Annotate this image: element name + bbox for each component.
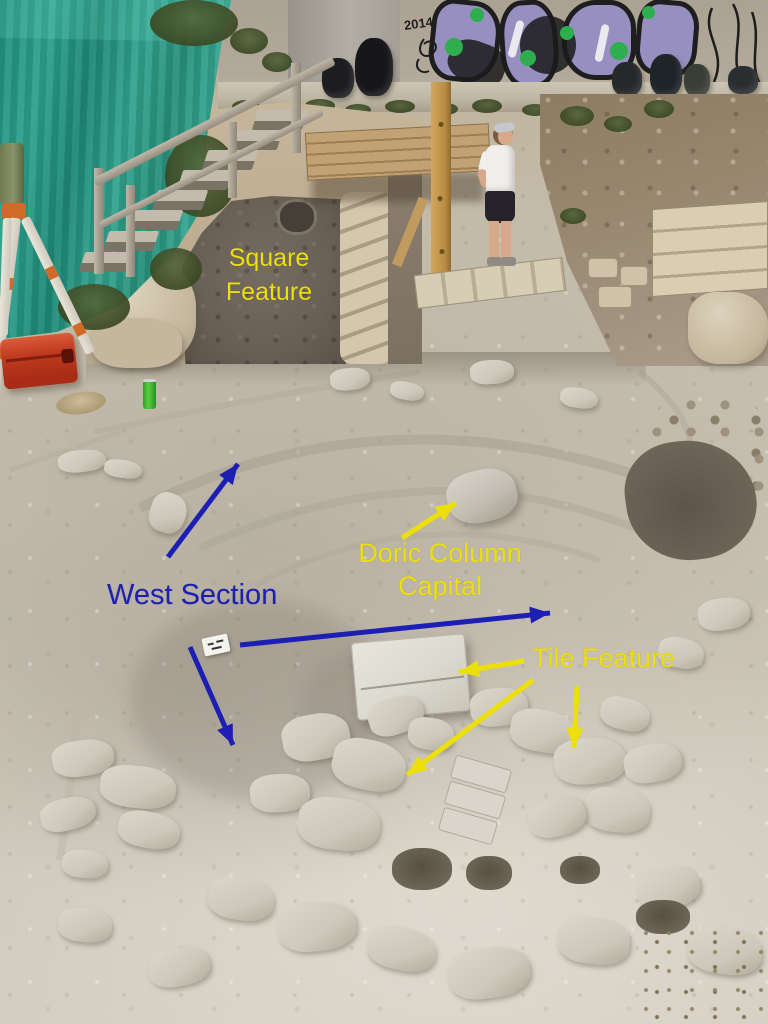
annotation-arrow-tile-feature [407, 680, 533, 775]
annotation-west-section: West Section [107, 579, 277, 612]
annotation-arrow-tile-feature [574, 686, 577, 748]
annotation-tile-feature: Tile Feature [532, 643, 675, 674]
annotation-square-feature: Square Feature [196, 241, 342, 309]
excavation-photo: 2014 [0, 0, 768, 1024]
annotation-arrow-west-section [240, 613, 550, 645]
annotation-arrow-tile-feature [459, 661, 524, 672]
annotation-arrows [0, 0, 768, 1024]
annotation-arrow-west-section [190, 647, 233, 745]
annotation-arrow-doric-column-capital [402, 503, 456, 538]
annotation-arrow-west-section [168, 464, 238, 557]
annotation-doric-column-capital: Doric Column Capital [348, 537, 532, 603]
